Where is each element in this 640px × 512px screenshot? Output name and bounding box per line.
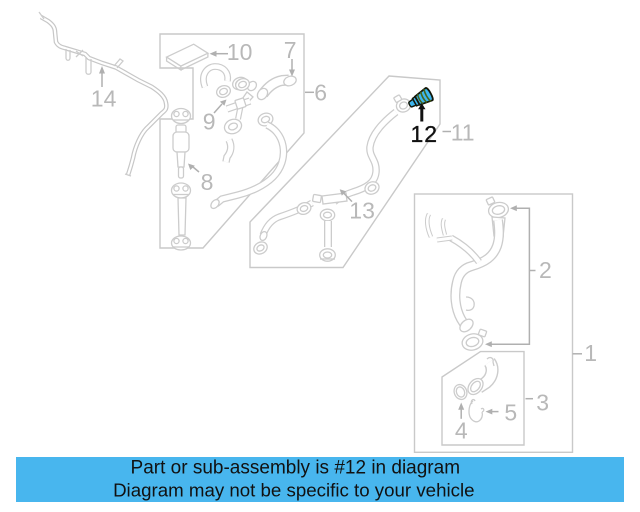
svg-text:Part or sub-assembly is #12 in: Part or sub-assembly is #12 in diagram — [131, 458, 460, 479]
svg-text:13: 13 — [349, 197, 375, 223]
svg-text:6: 6 — [314, 79, 327, 105]
svg-text:5: 5 — [504, 400, 517, 426]
svg-text:9: 9 — [203, 109, 216, 135]
svg-text:8: 8 — [201, 169, 214, 195]
svg-text:11: 11 — [451, 120, 475, 146]
svg-text:7: 7 — [284, 37, 297, 63]
svg-text:3: 3 — [536, 390, 549, 416]
svg-text:12: 12 — [411, 121, 438, 147]
svg-text:1: 1 — [584, 340, 597, 366]
svg-text:14: 14 — [91, 86, 117, 112]
svg-text:2: 2 — [539, 257, 552, 283]
svg-text:4: 4 — [455, 418, 468, 444]
svg-text:10: 10 — [227, 39, 253, 65]
svg-text:Diagram may not be specific to: Diagram may not be specific to your vehi… — [113, 479, 474, 500]
